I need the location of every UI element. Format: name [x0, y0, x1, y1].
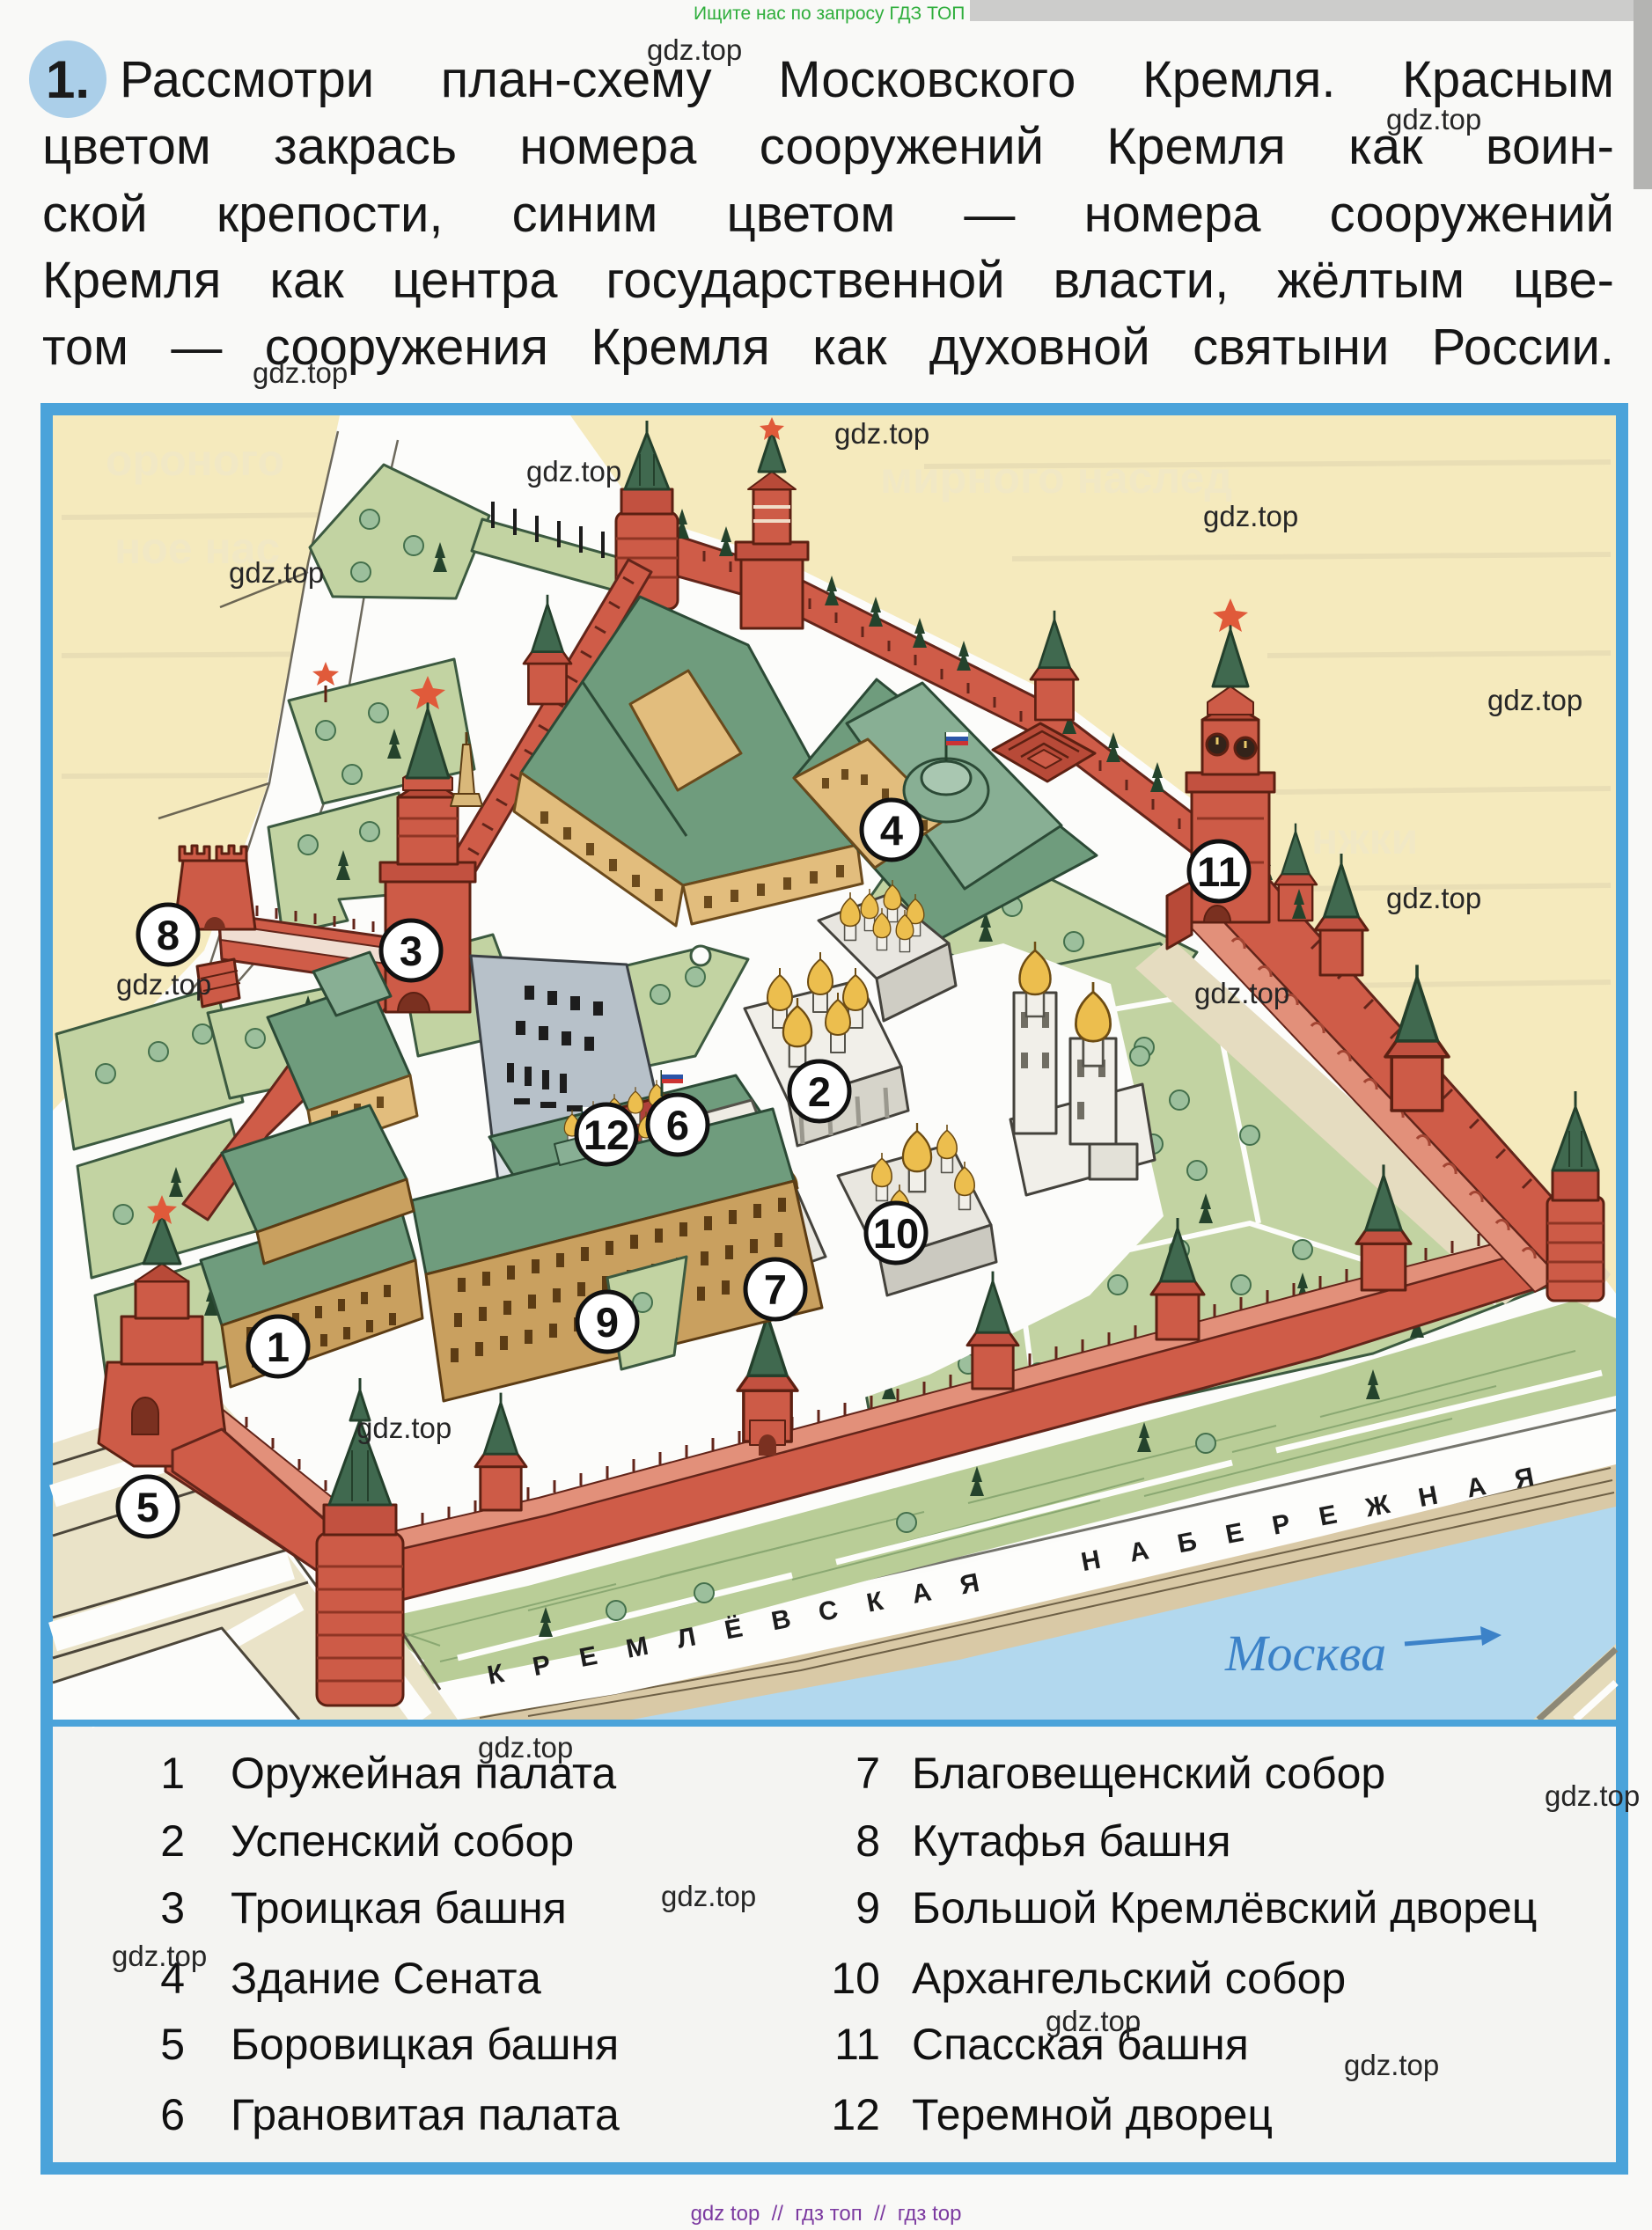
- svg-text:мирного наслед: мирного наслед: [880, 453, 1232, 502]
- svg-text:9: 9: [596, 1299, 619, 1346]
- svg-text:11: 11: [1197, 848, 1241, 895]
- svg-text:2: 2: [808, 1068, 831, 1115]
- svg-text:Москва: Москва: [1224, 1625, 1386, 1682]
- svg-text:7: 7: [764, 1266, 787, 1313]
- svg-text:10: 10: [873, 1210, 919, 1257]
- svg-text:3: 3: [400, 928, 422, 974]
- svg-text:нжки: нжки: [1311, 814, 1418, 863]
- svg-text:6: 6: [666, 1102, 689, 1148]
- svg-text:ороного: ороного: [106, 436, 284, 485]
- svg-text:12: 12: [584, 1111, 629, 1158]
- svg-text:8: 8: [157, 912, 180, 958]
- svg-text:4: 4: [880, 807, 903, 854]
- svg-text:5: 5: [136, 1484, 159, 1530]
- svg-text:1: 1: [267, 1324, 290, 1370]
